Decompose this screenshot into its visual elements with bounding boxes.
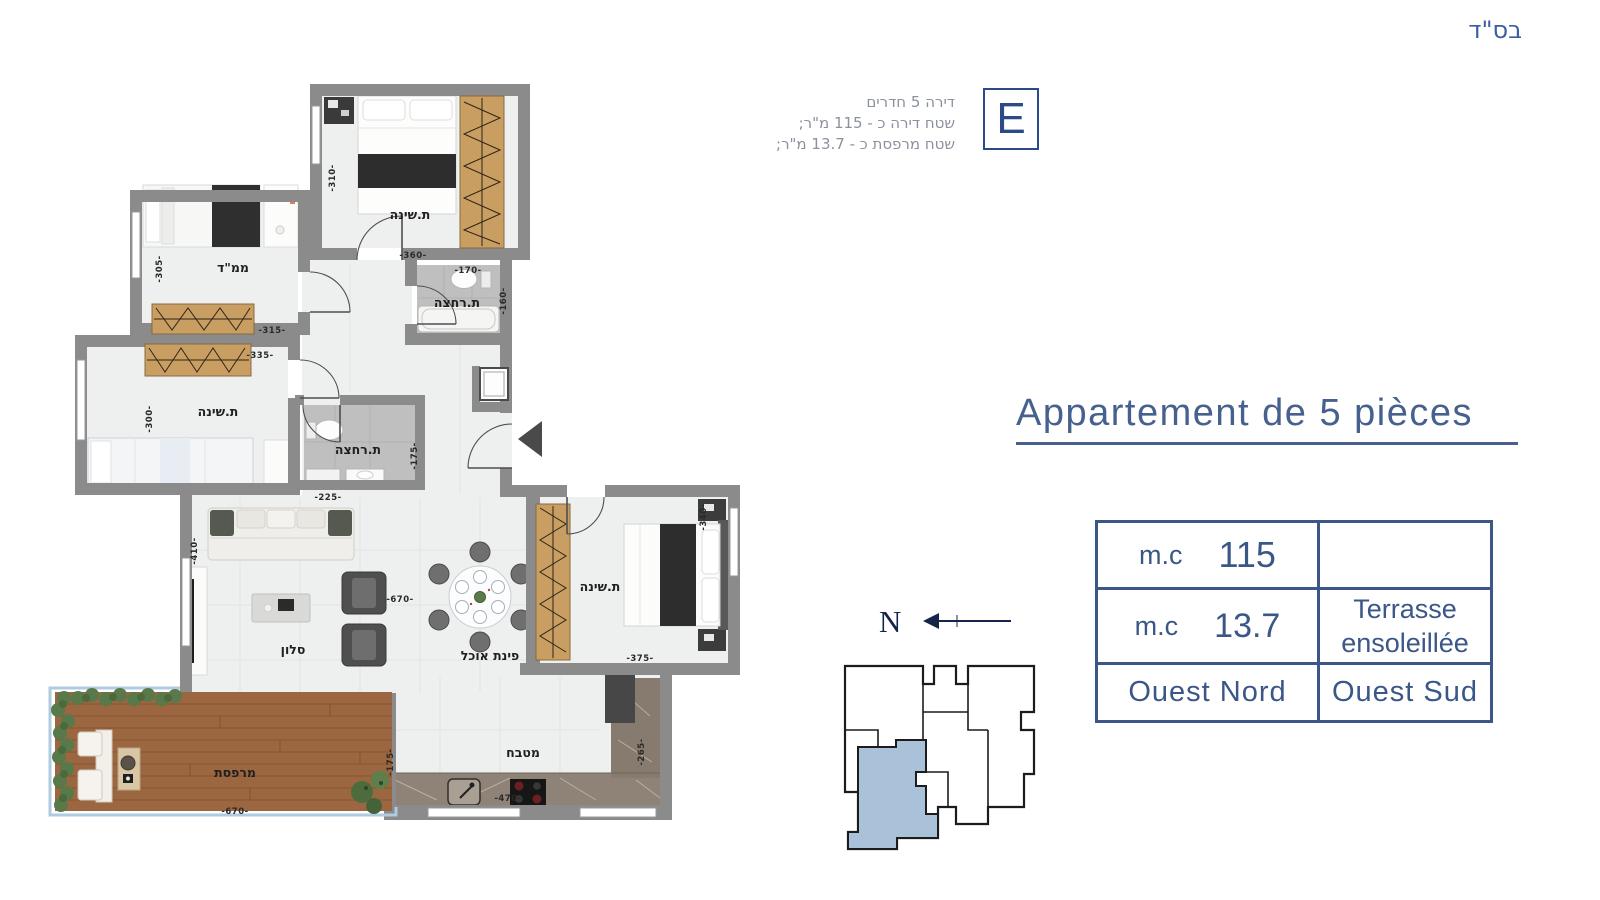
bsd-text: בס"ד bbox=[1468, 16, 1522, 44]
single-bed bbox=[88, 438, 253, 486]
dim-label: -315- bbox=[258, 326, 285, 336]
window bbox=[580, 808, 656, 817]
terrace bbox=[50, 688, 396, 815]
dim-label: -670- bbox=[221, 807, 248, 817]
double-bed bbox=[624, 520, 728, 630]
spec-unit-label: m.c bbox=[1139, 540, 1183, 571]
spec-cell-orientation-left: Ouest Nord bbox=[1098, 665, 1320, 720]
dim-label: -170- bbox=[454, 266, 481, 276]
unit-info-line: שטח דירה כ - 115 מ"ר; bbox=[776, 113, 955, 134]
dim-label: -305- bbox=[155, 255, 165, 282]
orientation-west-south: Ouest Sud bbox=[1332, 676, 1478, 709]
room-label-bedroom-right: ת.שינה bbox=[580, 579, 621, 594]
floor-plan: ת.שינה ממ"ד ת.רחצה ת.שינה ת.רחצה סלון פי… bbox=[40, 80, 740, 820]
unit-info-line: דירה 5 חדרים bbox=[776, 92, 955, 113]
dim-label: -175- bbox=[386, 748, 396, 775]
north-arrow-icon bbox=[923, 613, 1011, 629]
window bbox=[182, 558, 190, 646]
spec-cell-area: m.c 115 bbox=[1098, 523, 1320, 590]
room-label-bedroom-left: ת.שינה bbox=[198, 404, 239, 419]
coffee-table bbox=[252, 594, 310, 622]
window bbox=[312, 106, 320, 164]
spec-table: m.c 115 m.c 13.7 Terrasse ensoleillée Ou… bbox=[1095, 520, 1493, 723]
room-label-terrace: מרפסת bbox=[214, 765, 256, 780]
dim-label: -300- bbox=[145, 405, 155, 432]
window bbox=[428, 808, 520, 817]
dim-label: -265- bbox=[637, 738, 647, 765]
dim-label: -410- bbox=[190, 537, 200, 564]
armchair bbox=[342, 624, 386, 666]
spec-cell-terrasse: Terrasse ensoleillée bbox=[1320, 590, 1490, 665]
sofa bbox=[208, 508, 354, 560]
armchair bbox=[342, 572, 386, 614]
dim-label: -160- bbox=[499, 287, 509, 314]
window bbox=[730, 508, 738, 576]
dim-label: -375- bbox=[626, 654, 653, 664]
wardrobe bbox=[145, 344, 251, 376]
wardrobe bbox=[460, 96, 504, 248]
unit-letter: E bbox=[996, 94, 1025, 144]
outdoor-table bbox=[121, 756, 135, 770]
dim-label: -340- bbox=[699, 503, 709, 530]
double-bed bbox=[358, 96, 456, 214]
dim-label: -670- bbox=[386, 595, 413, 605]
dim-label: -310- bbox=[328, 164, 338, 191]
north-label: N bbox=[879, 604, 901, 639]
spec-cell-terrace-area: m.c 13.7 bbox=[1098, 590, 1320, 665]
window bbox=[77, 360, 85, 440]
wardrobe bbox=[536, 504, 570, 660]
unit-letter-box: E bbox=[983, 88, 1039, 150]
room-label-bath-mid: ת.רחצה bbox=[335, 442, 381, 457]
dim-label: -175- bbox=[410, 442, 420, 469]
page-title: Appartement de 5 pièces bbox=[1016, 392, 1518, 445]
orientation-west-north: Ouest Nord bbox=[1128, 676, 1286, 709]
spec-area-value: 115 bbox=[1219, 534, 1276, 576]
spec-cell-orientation-right: Ouest Sud bbox=[1320, 665, 1490, 720]
spec-unit-label: m.c bbox=[1135, 611, 1179, 642]
bedroom-left-furniture bbox=[88, 438, 297, 486]
building-keyplan bbox=[838, 652, 1043, 857]
dim-label: -360- bbox=[399, 251, 426, 261]
room-label-kitchen: מטבח bbox=[506, 745, 540, 760]
wardrobe bbox=[152, 304, 254, 334]
spec-terrace-value: 13.7 bbox=[1214, 607, 1280, 646]
compass: N bbox=[873, 600, 1018, 644]
dim-label: -335- bbox=[246, 351, 273, 361]
highlighted-unit bbox=[848, 740, 938, 849]
terrasse-line1: Terrasse bbox=[1341, 592, 1469, 626]
dim-label: -470- bbox=[494, 794, 521, 804]
room-label-bedroom-top: ת.שינה bbox=[390, 207, 431, 222]
terrasse-line2: ensoleillée bbox=[1341, 626, 1469, 660]
dim-label: -225- bbox=[314, 493, 341, 503]
tall-cabinet bbox=[605, 675, 635, 723]
room-label-mamad: ממ"ד bbox=[217, 260, 249, 275]
unit-info-line: שטח מרפסת כ - 13.7 מ"ר; bbox=[776, 134, 955, 155]
room-label-salon: סלון bbox=[281, 642, 306, 657]
window bbox=[132, 212, 140, 278]
toilet bbox=[306, 420, 343, 440]
spec-cell-empty bbox=[1320, 523, 1490, 590]
entrance-arrow-icon bbox=[518, 421, 542, 457]
unit-info-block: דירה 5 חדרים שטח דירה כ - 115 מ"ר; שטח מ… bbox=[776, 92, 955, 155]
room-label-dining: פינת אוכל bbox=[461, 648, 520, 663]
room-label-bath-top: ת.רחצה bbox=[434, 295, 480, 310]
kitchen-sink bbox=[448, 779, 480, 805]
service-shaft bbox=[480, 368, 508, 400]
